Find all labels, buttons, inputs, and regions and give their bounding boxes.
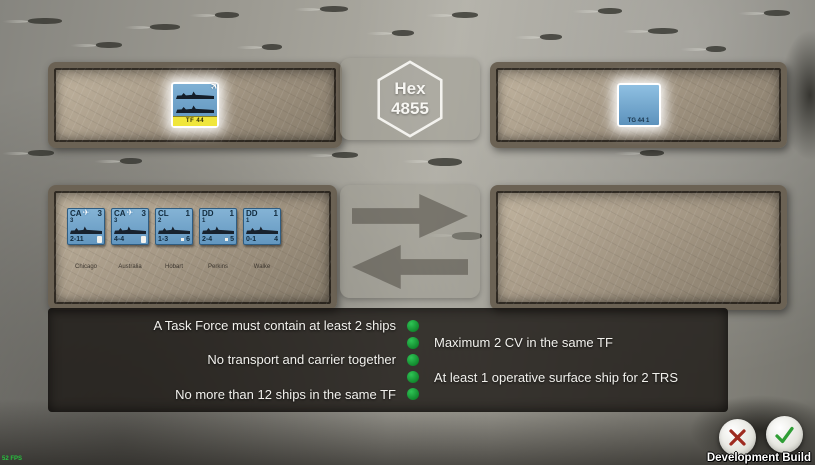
tf-counter[interactable]: ✈ TF 44 [171, 82, 219, 128]
ship-value: 3 [114, 218, 117, 224]
marker-icon [225, 238, 228, 241]
background-ship [540, 34, 562, 40]
background-ship [215, 12, 239, 18]
background-ship [452, 12, 478, 18]
background-ship [648, 28, 678, 34]
hex-number: 4855 [391, 99, 429, 119]
tf-source-slot[interactable]: ✈ TF 44 [48, 62, 342, 148]
rule-text: No more than 12 ships in the same TF [48, 387, 400, 402]
hex-label: Hex [394, 79, 425, 99]
background-ship [28, 150, 54, 156]
floatplane-icon: ✈ [83, 209, 90, 217]
task-force-editor-screen: ✈ TF 44 Hex 4855 TG 44 1 CA3 3 ✈ 2-11 Ch… [0, 0, 815, 465]
ship-silhouette-icon [246, 225, 278, 234]
rule-text: At least 1 operative surface ship for 2 … [426, 370, 728, 385]
ship-silhouette-icon [158, 225, 190, 234]
ship-silhouette-icon [114, 225, 146, 234]
ship-silhouette-icon [202, 225, 234, 234]
ship-name: Chicago [62, 264, 110, 270]
transfer-arrows-panel [340, 185, 480, 298]
ship-silhouette-icon [176, 90, 214, 99]
background-ship [262, 44, 282, 50]
background-ship [120, 158, 142, 164]
background-ship [428, 158, 462, 166]
rule-text: A Task Force must contain at least 2 shi… [48, 318, 400, 333]
tg-counter[interactable]: TG 44 1 [617, 83, 661, 127]
ship-value: 1 [230, 210, 234, 218]
ship-value: 1 [274, 210, 278, 218]
status-ok-dot [407, 337, 419, 349]
background-ship [706, 46, 726, 52]
rule-text: No transport and carrier together [48, 352, 400, 367]
target-ships-panel[interactable] [490, 185, 787, 310]
ship-type: DD [202, 210, 214, 218]
ship-value: 3 [98, 210, 102, 218]
ship-silhouette-icon [70, 225, 102, 234]
ship-type: CA [114, 210, 126, 218]
ship-value: 3 [142, 210, 146, 218]
ship-value: 3 [70, 218, 73, 224]
ship-value: 2 [158, 218, 161, 224]
ship-type: CA [70, 210, 82, 218]
status-ok-dot [407, 371, 419, 383]
background-ship [598, 8, 622, 14]
ship-value: 1 [186, 210, 190, 218]
ship-counter[interactable]: CA3 3 ✈ 4-4 Australia [111, 208, 149, 245]
ship-value: 1 [246, 218, 249, 224]
rules-panel: A Task Force must contain at least 2 shi… [48, 308, 728, 412]
status-ok-dot [407, 320, 419, 332]
ship-attack-value: 2-11 [70, 236, 84, 243]
development-build-label: Development Build [707, 452, 811, 464]
ship-counter[interactable]: DD1 1 2-45 Perkins [199, 208, 237, 245]
ship-silhouette-icon [176, 104, 214, 113]
marker-icon [181, 238, 184, 241]
ship-name: Australia [106, 264, 154, 270]
ship-name: Perkins [194, 264, 242, 270]
hex-indicator: Hex 4855 [340, 58, 480, 140]
ship-type: CL [158, 210, 169, 218]
speed-box-icon [141, 236, 146, 243]
background-ship [28, 18, 62, 24]
background-ship [332, 152, 358, 158]
ship-speed-value: 6 [186, 236, 190, 243]
background-ship [764, 10, 790, 16]
ship-counter[interactable]: CA3 3 ✈ 2-11 Chicago [67, 208, 105, 245]
ship-counter[interactable]: CL1 2 1-36 Hobart [155, 208, 193, 245]
background-ship [96, 42, 122, 48]
ship-value: 1 [202, 218, 205, 224]
ship-type: DD [246, 210, 258, 218]
fps-counter: 52 FPS [2, 456, 22, 462]
background-ship [150, 24, 180, 30]
ship-speed-value: 4 [274, 236, 278, 243]
move-right-arrow-icon[interactable] [352, 194, 468, 238]
ship-speed-value: 5 [230, 236, 234, 243]
background-ship [640, 150, 664, 156]
status-ok-dot [407, 388, 419, 400]
move-left-arrow-icon[interactable] [352, 245, 468, 289]
source-ships-panel[interactable]: CA3 3 ✈ 2-11 Chicago CA3 3 ✈ 4-4 Austral… [48, 185, 337, 310]
aircraft-icon: ✈ [208, 80, 222, 94]
ship-attack-value: 4-4 [114, 236, 124, 243]
tf-counter-label: TF 44 [173, 116, 217, 126]
floatplane-icon: ✈ [127, 209, 134, 217]
status-ok-dot [407, 354, 419, 366]
tg-target-slot[interactable]: TG 44 1 [490, 62, 787, 148]
cancel-button[interactable] [719, 419, 756, 456]
rule-text: Maximum 2 CV in the same TF [426, 335, 728, 350]
ship-name: Hobart [150, 264, 198, 270]
background-ship [392, 30, 414, 36]
ship-attack-value: 0-1 [246, 236, 256, 243]
x-icon [725, 425, 750, 450]
ship-attack-value: 1-3 [158, 236, 168, 243]
ship-counter[interactable]: DD1 1 0-14 Walke [243, 208, 281, 245]
ship-name: Walke [238, 264, 286, 270]
ship-attack-value: 2-4 [202, 236, 212, 243]
confirm-button[interactable] [766, 416, 803, 453]
tg-counter-label: TG 44 1 [619, 118, 659, 124]
speed-box-icon [97, 236, 102, 243]
check-icon [772, 422, 797, 447]
background-ship [320, 6, 348, 12]
